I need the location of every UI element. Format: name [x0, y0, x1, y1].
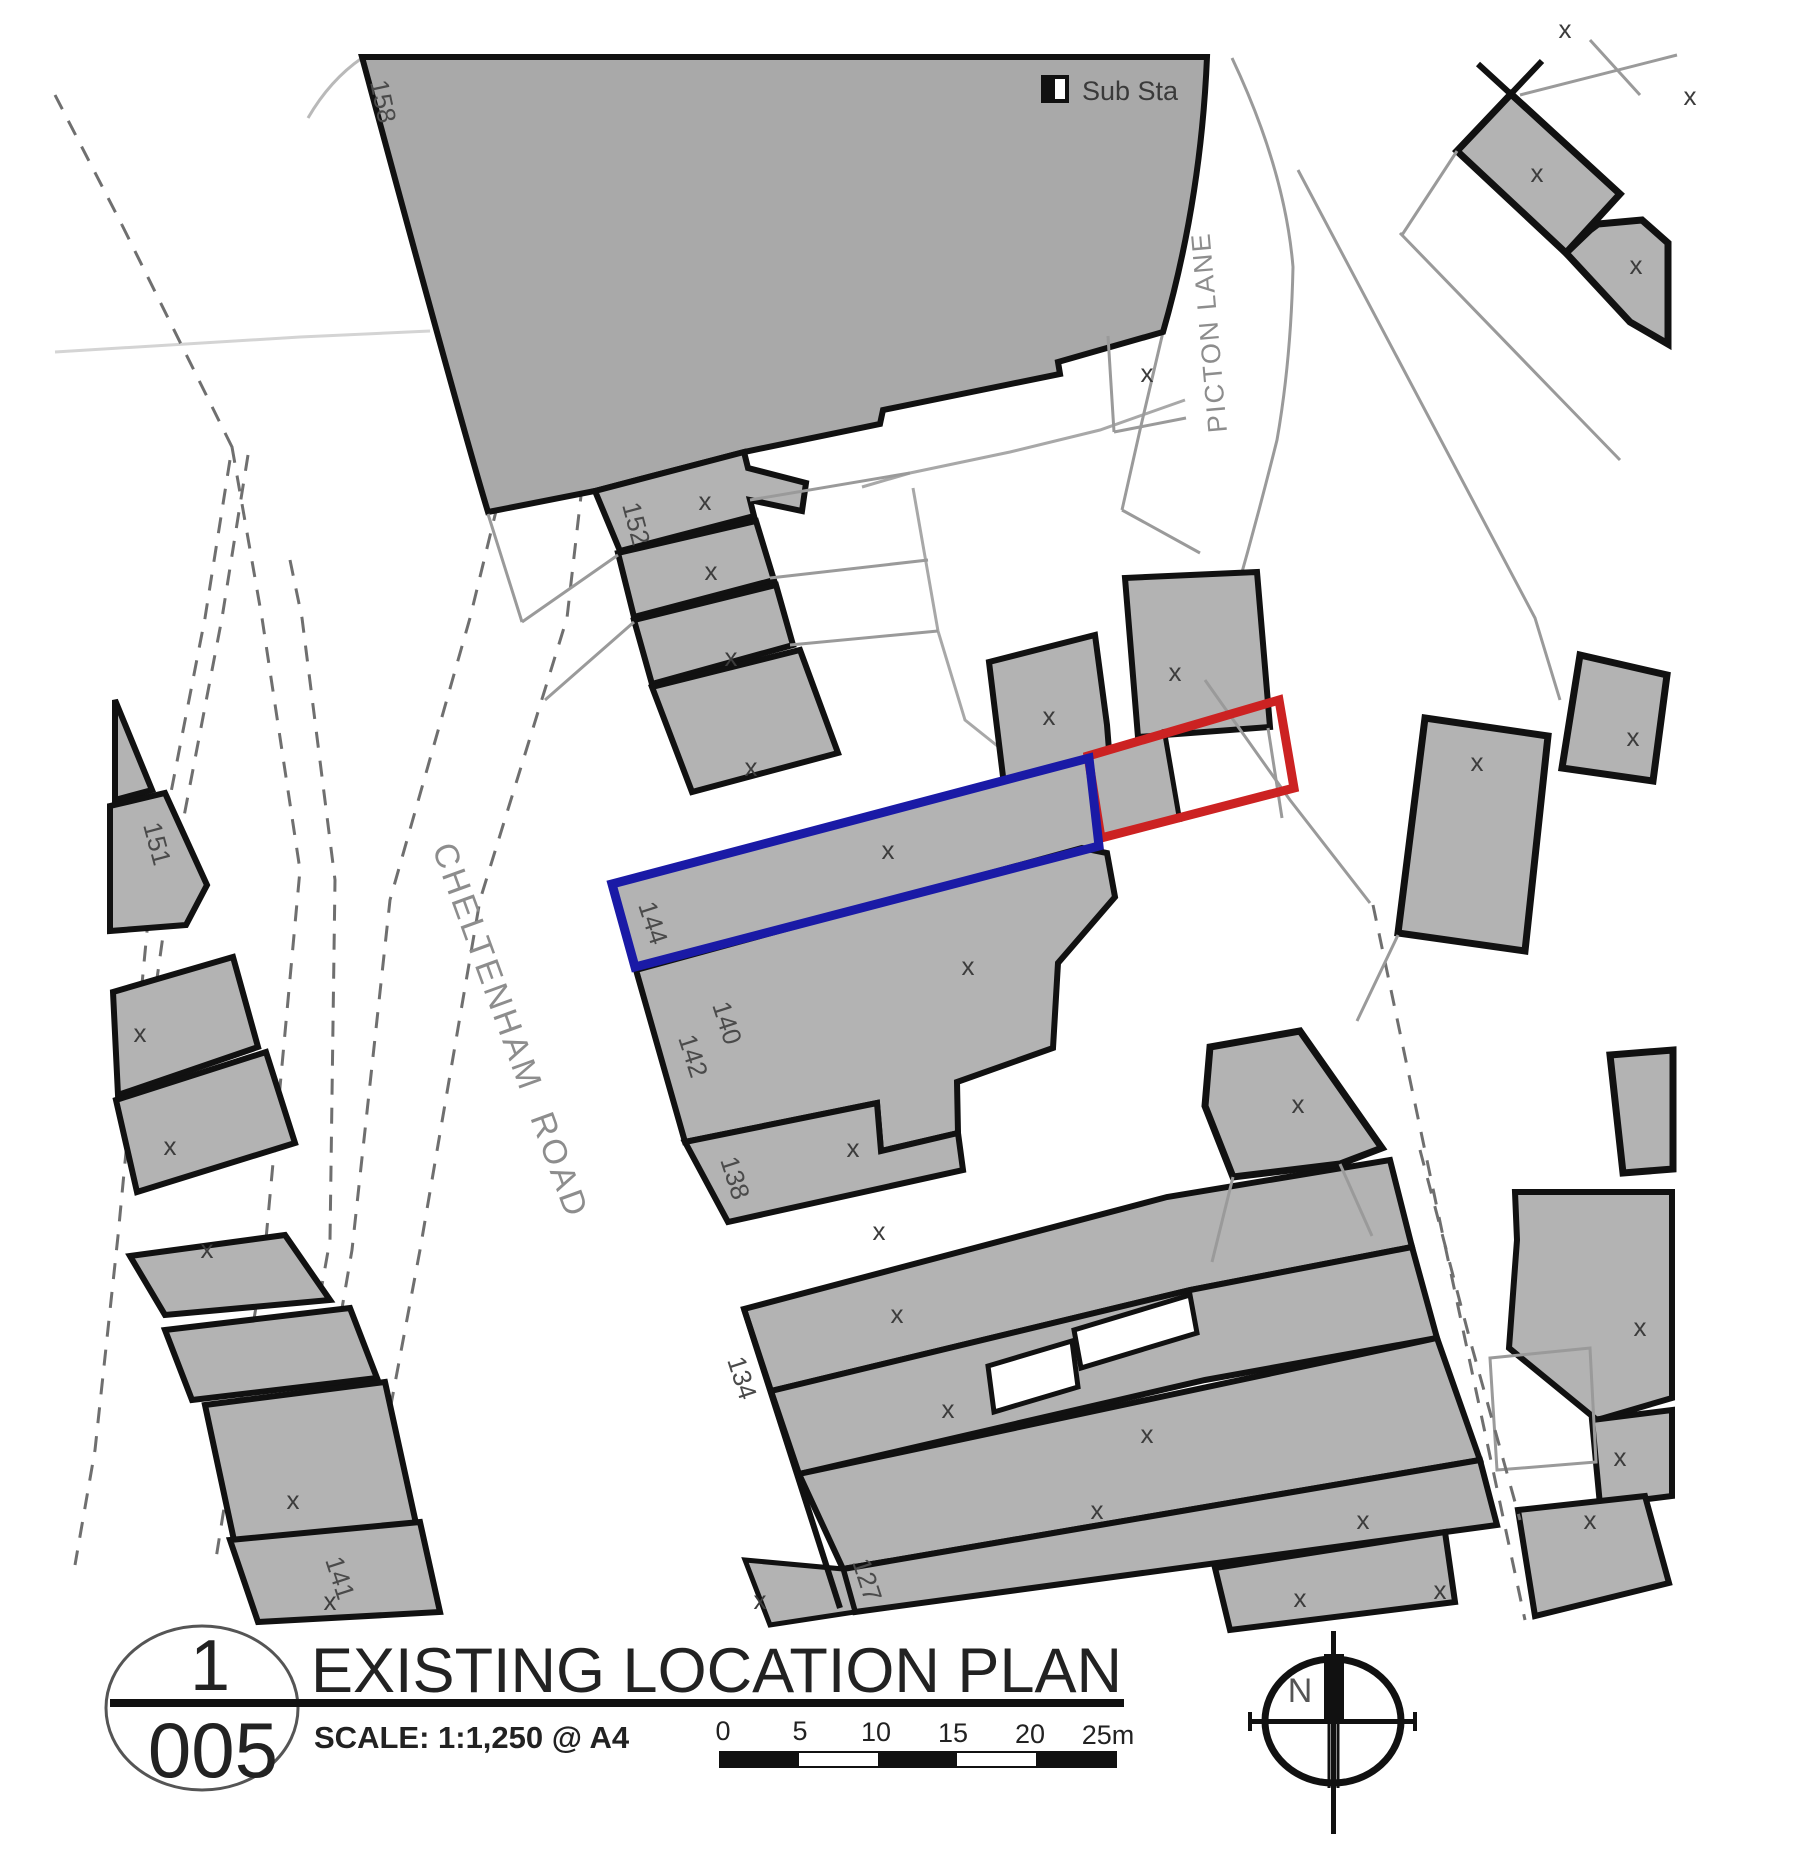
svg-text:x: x — [324, 1586, 337, 1616]
svg-text:x: x — [1292, 1089, 1305, 1119]
svg-text:x: x — [1357, 1505, 1370, 1535]
svg-text:x: x — [1634, 1312, 1647, 1342]
svg-text:SCALE: 1:1,250 @ A4: SCALE: 1:1,250 @ A4 — [314, 1720, 630, 1755]
svg-text:x: x — [1614, 1442, 1627, 1472]
svg-text:x: x — [287, 1485, 300, 1515]
svg-text:x: x — [1630, 250, 1643, 280]
svg-text:x: x — [873, 1216, 886, 1246]
svg-text:x: x — [1169, 657, 1182, 687]
svg-text:EXISTING LOCATION PLAN: EXISTING LOCATION PLAN — [311, 1636, 1122, 1706]
svg-text:x: x — [1471, 747, 1484, 777]
svg-text:x: x — [1531, 158, 1544, 188]
svg-text:x: x — [1627, 722, 1640, 752]
svg-text:x: x — [1141, 1419, 1154, 1449]
svg-text:1: 1 — [190, 1626, 230, 1706]
svg-text:N: N — [1288, 1672, 1313, 1710]
svg-text:25m: 25m — [1082, 1720, 1135, 1750]
svg-text:x: x — [1043, 701, 1056, 731]
svg-text:x: x — [699, 486, 712, 516]
svg-text:x: x — [962, 951, 975, 981]
svg-text:x: x — [201, 1234, 214, 1264]
svg-text:x: x — [705, 556, 718, 586]
svg-text:x: x — [745, 752, 758, 782]
svg-text:x: x — [754, 1585, 767, 1615]
svg-text:005: 005 — [148, 1706, 278, 1794]
svg-text:x: x — [1434, 1575, 1447, 1605]
svg-text:Sub Sta: Sub Sta — [1082, 76, 1179, 106]
svg-text:x: x — [882, 835, 895, 865]
svg-text:20: 20 — [1015, 1719, 1045, 1749]
svg-text:x: x — [134, 1018, 147, 1048]
svg-text:x: x — [1684, 81, 1697, 111]
svg-text:x: x — [891, 1299, 904, 1329]
svg-text:x: x — [725, 642, 738, 672]
svg-text:x: x — [1294, 1583, 1307, 1613]
svg-text:x: x — [1584, 1505, 1597, 1535]
svg-text:0: 0 — [715, 1716, 730, 1746]
svg-text:x: x — [1091, 1495, 1104, 1525]
svg-text:15: 15 — [938, 1718, 968, 1748]
svg-text:5: 5 — [792, 1716, 807, 1746]
svg-text:10: 10 — [861, 1717, 891, 1747]
svg-text:x: x — [1141, 358, 1154, 388]
svg-text:x: x — [1559, 14, 1572, 44]
svg-text:x: x — [164, 1131, 177, 1161]
svg-text:x: x — [942, 1394, 955, 1424]
svg-text:x: x — [847, 1133, 860, 1163]
